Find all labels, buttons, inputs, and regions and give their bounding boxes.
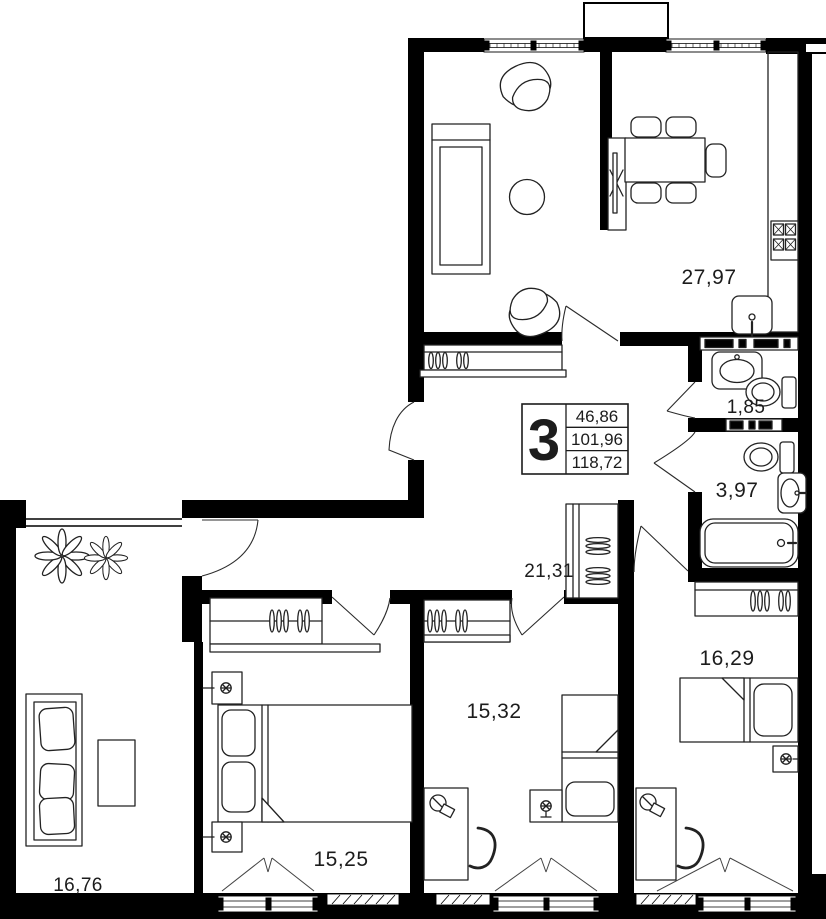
hallway-wardrobe-top — [420, 345, 566, 377]
terrace-door — [202, 520, 258, 576]
bathtub — [700, 519, 798, 567]
room-area-label-bedroom-left: 15,25 — [313, 848, 368, 871]
bathroom-door — [654, 432, 695, 492]
bedroom-left-door — [332, 597, 390, 635]
bath-cabinet — [726, 419, 782, 431]
bedroom-right-nightstand — [773, 746, 798, 772]
floor-plan-drawing: 27,97 1,85 3,97 21,31 16,29 15,32 15,25 … — [0, 0, 826, 919]
floor-plan: 27,97 1,85 3,97 21,31 16,29 15,32 15,25 … — [0, 0, 826, 919]
plant — [35, 529, 89, 583]
desk-chair — [470, 828, 495, 868]
stove — [771, 221, 798, 260]
living-sofa — [432, 124, 490, 274]
terrace-sofa — [26, 694, 82, 846]
bathroom-sink — [778, 473, 806, 513]
bedroom-right-bed — [680, 678, 798, 742]
bedroom-middle-bed — [562, 695, 618, 822]
room-area-label-hallway: 21,31 — [524, 561, 574, 582]
stamp-rooms-count: 3 — [528, 408, 560, 473]
room-area-label-bedroom-right: 16,29 — [699, 647, 754, 670]
room-area-label-bathroom: 3,97 — [716, 479, 759, 502]
coffee-table — [510, 180, 545, 215]
bedroom-right-wardrobe — [695, 582, 798, 616]
living-room-door — [562, 306, 618, 341]
wc-door — [667, 382, 695, 418]
wall-notch — [806, 44, 826, 52]
terrace-table — [98, 740, 135, 806]
room-area-label-terrace: 16,76 — [53, 875, 103, 896]
room-area-label-bedroom-middle: 15,32 — [466, 700, 521, 723]
stamp-total-area: 118,72 — [572, 453, 623, 472]
window-bottom-right — [698, 896, 796, 912]
bedroom-left-bed — [218, 705, 412, 822]
bedroom-left-nightstand — [203, 672, 242, 704]
bathroom-toilet — [744, 442, 794, 473]
apartment-stamp: 3 46,86 101,96 118,72 — [522, 404, 628, 474]
kitchen-counter — [768, 52, 798, 332]
bedroom-middle-wardrobe — [424, 600, 510, 642]
desk-chair — [678, 828, 703, 868]
window-top-right — [666, 39, 766, 52]
wc-cabinet — [700, 337, 798, 350]
kitchen-sink — [732, 296, 772, 340]
vent-shaft — [584, 3, 668, 38]
bedroom-middle-nightstand — [530, 790, 562, 822]
entrance-door — [389, 402, 414, 460]
room-area-label-kitchen-living: 27,97 — [681, 266, 736, 289]
bedroom-left-wardrobe — [210, 598, 380, 652]
armchair — [493, 55, 560, 121]
plant — [84, 536, 127, 579]
dining-table-set — [625, 117, 726, 203]
terrace-glazing — [16, 519, 182, 526]
stamp-main-area: 101,96 — [571, 430, 623, 449]
window-top-left — [484, 39, 584, 52]
bedroom-right-desk — [636, 788, 703, 880]
bedroom-left-nightstand-2 — [203, 822, 242, 852]
tv-console — [608, 138, 626, 230]
hallway-wardrobe-side — [566, 504, 618, 598]
stamp-living-area: 46,86 — [576, 407, 619, 426]
bedroom-middle-desk — [424, 788, 495, 880]
bedroom-right-door — [634, 526, 688, 572]
window-swing-symbols — [222, 858, 793, 891]
window-bottom-left-door — [218, 896, 318, 912]
room-area-label-wc: 1,85 — [727, 397, 766, 418]
window-bottom-middle — [493, 896, 599, 912]
bedroom-middle-door — [511, 597, 564, 635]
